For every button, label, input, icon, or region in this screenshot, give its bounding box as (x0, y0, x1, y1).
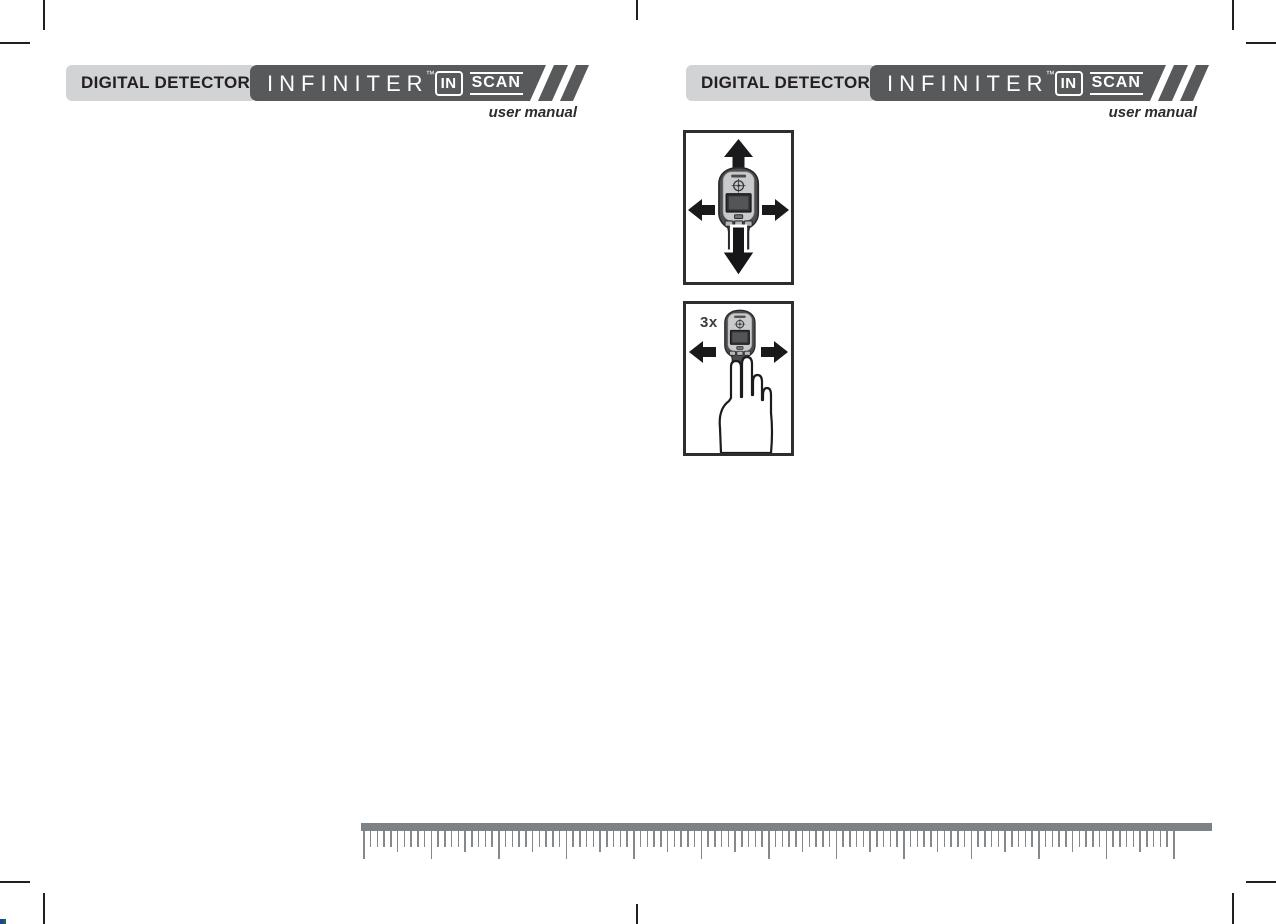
ruler-tick (782, 831, 784, 847)
ruler-tick (822, 831, 824, 847)
ruler-tick (863, 831, 865, 847)
ruler-tick (1085, 831, 1087, 847)
ruler-tick (383, 831, 385, 847)
arrow-left-icon (688, 199, 715, 221)
ruler-tick (944, 831, 946, 847)
arrow-right-icon (762, 199, 789, 221)
ruler-tick (1133, 831, 1135, 847)
ruler-tick (849, 831, 851, 847)
ruler-tick (876, 831, 878, 847)
ruler-tick (836, 831, 838, 859)
ruler-tick (1038, 831, 1040, 859)
ruler-tick (1153, 831, 1155, 847)
ruler-tick (593, 831, 595, 847)
ruler-tick (707, 831, 709, 847)
ruler-tick (491, 831, 493, 847)
product-label-box: DIGITAL DETECTOR (686, 65, 876, 101)
ruler-tick (633, 831, 635, 859)
crop-mark-top-right-horizontal (1246, 42, 1276, 44)
brand-name: INFINITER™ (267, 69, 435, 97)
ruler-tick (991, 831, 993, 847)
crop-mark-bottom-center (636, 904, 638, 924)
ruler-tick (417, 831, 419, 847)
figure-scan-three-times: 3x (683, 301, 794, 456)
ruler-tick (653, 831, 655, 847)
ruler-tick (444, 831, 446, 847)
ruler-tick (478, 831, 480, 847)
ruler-tick (377, 831, 379, 847)
ruler-tick (1112, 831, 1114, 847)
ruler-tick (667, 831, 669, 852)
ruler-tick (910, 831, 912, 847)
crop-mark-bottom-left-vertical (43, 893, 45, 924)
ruler-tick (734, 831, 736, 852)
ruler-tick (964, 831, 966, 847)
ruler-tick (701, 831, 703, 859)
print-color-chip (0, 919, 6, 924)
ruler-tick (397, 831, 399, 852)
ruler-tick (1011, 831, 1013, 847)
ruler-tick (390, 831, 392, 847)
ruler-tick (424, 831, 426, 847)
ruler-tick (795, 831, 797, 847)
ruler-tick (869, 831, 871, 852)
ruler-tick (856, 831, 858, 847)
ruler-tick (903, 831, 905, 859)
ruler-tick (498, 831, 500, 859)
scanned-manual-spread: DIGITAL DETECTOR INFINITER™ IN SCAN user… (0, 0, 1276, 924)
ruler-tick (1099, 831, 1101, 847)
in-scan-logo: IN SCAN (1055, 71, 1143, 96)
ruler-tick (613, 831, 615, 847)
ruler-bar (361, 823, 1212, 831)
ruler-tick (363, 831, 365, 859)
right-page-header-banner: DIGITAL DETECTOR INFINITER™ IN SCAN user… (686, 65, 1221, 123)
ruler-tick (815, 831, 817, 847)
left-page-header-banner: DIGITAL DETECTOR INFINITER™ IN SCAN user… (66, 65, 601, 123)
ruler-tick (471, 831, 473, 847)
ruler-tick (606, 831, 608, 847)
logo-scan-text: SCAN (470, 72, 523, 95)
product-label: DIGITAL DETECTOR (81, 73, 250, 93)
ruler-tick (829, 831, 831, 847)
ruler-tick (768, 831, 770, 859)
trademark-symbol: ™ (426, 69, 435, 79)
ruler-tick (687, 831, 689, 847)
ruler-tick (721, 831, 723, 847)
ruler-tick (660, 831, 662, 847)
ruler-tick (437, 831, 439, 847)
scan-repeat-count-label: 3x (700, 314, 718, 331)
ruler-tick (1045, 831, 1047, 847)
ruler-tick (1092, 831, 1094, 847)
ruler-tick (748, 831, 750, 847)
ruler-tick (599, 831, 601, 852)
figure-move-directions-art (686, 133, 791, 282)
ruler-tick (370, 831, 372, 847)
ruler-tick (788, 831, 790, 847)
product-label-box: DIGITAL DETECTOR (66, 65, 256, 101)
ruler-tick (1146, 831, 1148, 847)
ruler-tick (923, 831, 925, 847)
ruler-tick (539, 831, 541, 847)
ruler-tick (984, 831, 986, 847)
crop-mark-bottom-right-horizontal (1246, 881, 1276, 883)
user-manual-tagline: user manual (366, 104, 577, 121)
ruler-tick (505, 831, 507, 847)
ruler-tick (1173, 831, 1175, 859)
ruler-tick (518, 831, 520, 847)
logo-in-badge: IN (1055, 71, 1083, 96)
ruler-tick (626, 831, 628, 847)
ruler-tick (620, 831, 622, 847)
ruler-tick (1052, 831, 1054, 847)
ruler-tick (1079, 831, 1081, 847)
brand-box: INFINITER™ IN SCAN (250, 65, 529, 101)
ruler-tick (977, 831, 979, 847)
crop-mark-bottom-left-horizontal (0, 881, 30, 883)
ruler-tick (680, 831, 682, 847)
crop-mark-top-right-vertical (1232, 0, 1234, 30)
arrow-down-outline-icon (721, 226, 756, 277)
ruler-tick (741, 831, 743, 847)
ruler-tick (694, 831, 696, 847)
ruler-tick (545, 831, 547, 847)
ruler-tick (566, 831, 568, 859)
ruler-tick (1160, 831, 1162, 847)
arrow-left-icon (689, 341, 716, 363)
ruler-tick (755, 831, 757, 847)
ruler-tick (971, 831, 973, 859)
ruler-tick (1119, 831, 1121, 847)
ruler-tick (1139, 831, 1141, 852)
user-manual-tagline: user manual (986, 104, 1197, 121)
ruler-tick (1004, 831, 1006, 852)
ruler-tick (930, 831, 932, 847)
ruler-tick (809, 831, 811, 847)
ruler-tick (451, 831, 453, 847)
ruler-tick (647, 831, 649, 847)
ruler-tick (1072, 831, 1074, 852)
ruler-tick (458, 831, 460, 847)
crop-mark-top-left-horizontal (0, 42, 30, 44)
ruler-tick (957, 831, 959, 847)
ruler-tick (950, 831, 952, 847)
ruler-tick (883, 831, 885, 847)
crop-mark-top-center (636, 0, 638, 20)
ruler-tick (532, 831, 534, 852)
ruler-tick (842, 831, 844, 847)
arrow-right-icon (761, 341, 788, 363)
figure-move-directions (683, 130, 794, 285)
ruler-tick (775, 831, 777, 847)
ruler-tick (802, 831, 804, 852)
ruler-tick (559, 831, 561, 847)
trademark-symbol: ™ (1046, 69, 1055, 79)
brand-name: INFINITER™ (887, 69, 1055, 97)
ruler-tick (512, 831, 514, 847)
ruler-tick (674, 831, 676, 847)
hand-illustration (720, 357, 772, 453)
ruler-tick (998, 831, 1000, 847)
ruler-tick (572, 831, 574, 847)
ruler-tick (552, 831, 554, 847)
ruler-tick (917, 831, 919, 847)
ruler-tick (1126, 831, 1128, 847)
measuring-ruler (361, 823, 1212, 863)
ruler-tick (714, 831, 716, 847)
ruler-tick (640, 831, 642, 847)
ruler-tick (1106, 831, 1108, 859)
ruler-tick (404, 831, 406, 847)
ruler-tick (1031, 831, 1033, 847)
logo-scan-text: SCAN (1090, 72, 1143, 95)
ruler-tick (1018, 831, 1020, 847)
ruler-tick (485, 831, 487, 847)
ruler-tick (728, 831, 730, 847)
brand-box: INFINITER™ IN SCAN (870, 65, 1149, 101)
ruler-tick (579, 831, 581, 847)
crop-mark-top-left-vertical (43, 0, 45, 30)
ruler-tick (1166, 831, 1168, 847)
ruler-tick (890, 831, 892, 847)
logo-in-badge: IN (435, 71, 463, 96)
crop-mark-bottom-right-vertical (1232, 893, 1234, 924)
ruler-tick (431, 831, 433, 859)
product-label: DIGITAL DETECTOR (701, 73, 870, 93)
ruler-tick (1065, 831, 1067, 847)
ruler-tick (937, 831, 939, 852)
ruler-tick (410, 831, 412, 847)
in-scan-logo: IN SCAN (435, 71, 523, 96)
ruler-tick (586, 831, 588, 847)
ruler-tick (1058, 831, 1060, 847)
ruler-tick (464, 831, 466, 852)
ruler-tick (761, 831, 763, 847)
ruler-tick (1025, 831, 1027, 847)
ruler-tick (896, 831, 898, 847)
ruler-tick (525, 831, 527, 847)
